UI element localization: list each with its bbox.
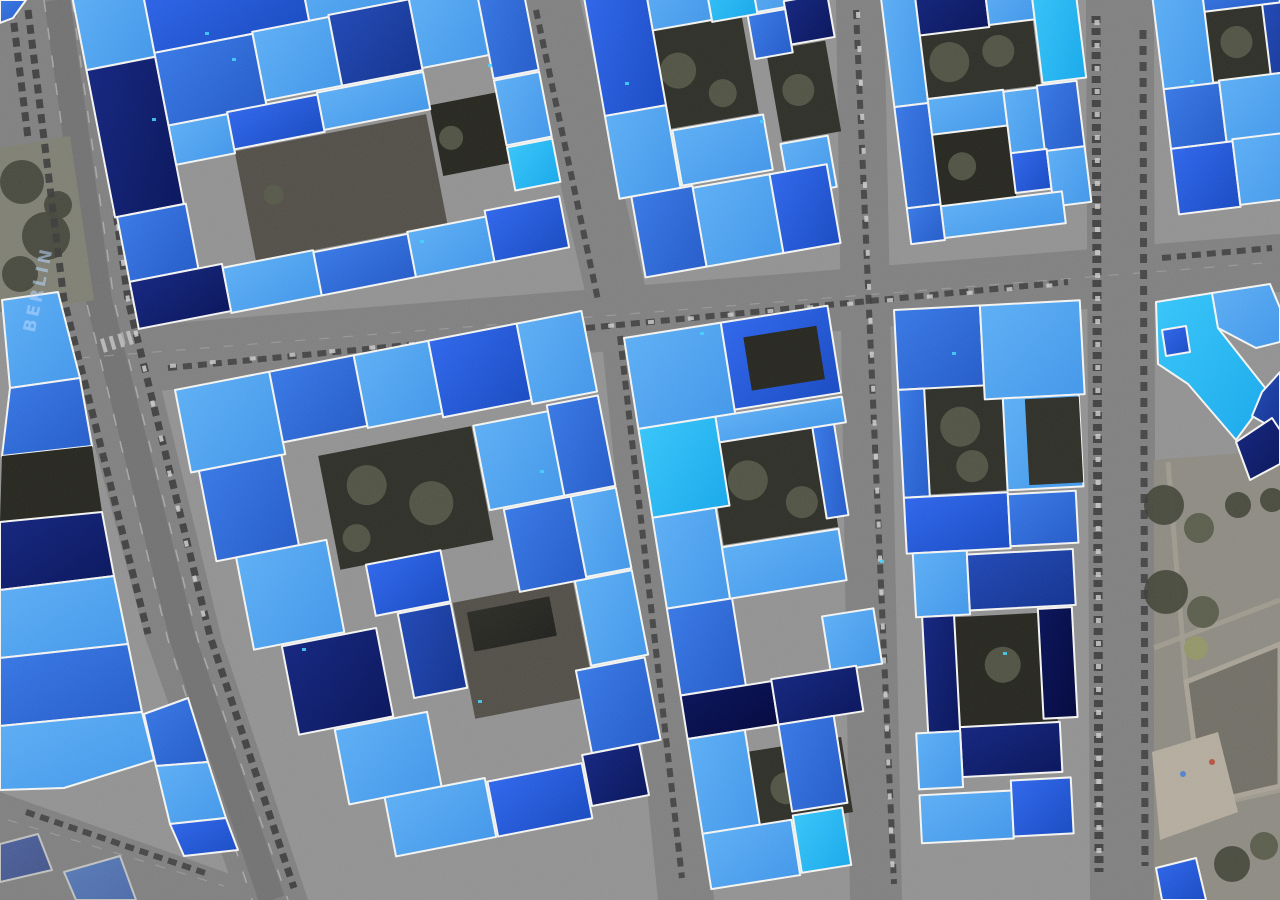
photo-grain-overlay (0, 0, 1280, 900)
map-canvas[interactable]: BERLIN (0, 0, 1280, 900)
aerial-map (0, 0, 1280, 900)
